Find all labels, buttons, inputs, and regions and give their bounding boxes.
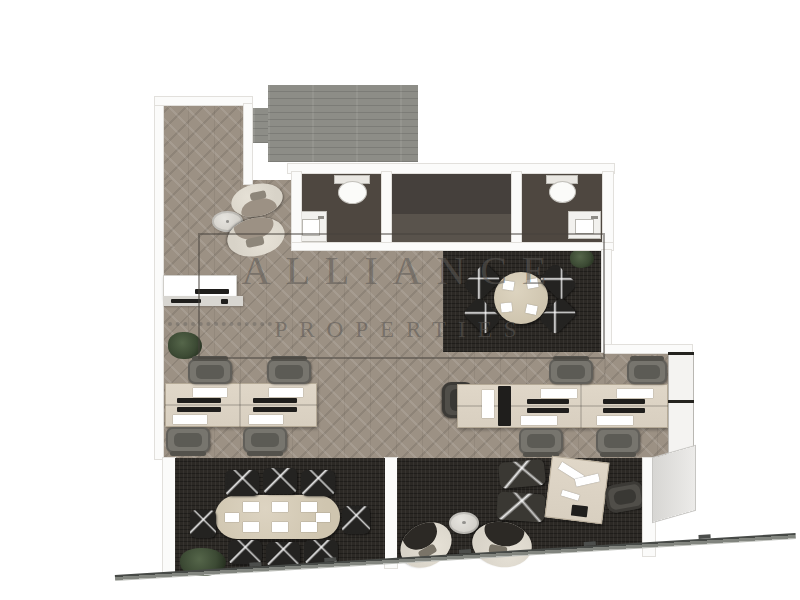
boundary-stub xyxy=(584,541,596,546)
desk-storage xyxy=(498,386,511,426)
side-table xyxy=(449,512,479,534)
wall-corridor-right xyxy=(244,104,252,184)
desk-bank-right xyxy=(457,384,668,428)
task-chair xyxy=(627,359,667,384)
desk-paper xyxy=(561,490,580,501)
watermark-box: ALLIANCE PROPERTIES xyxy=(198,233,605,359)
table-paper xyxy=(272,522,288,532)
desk-paper xyxy=(521,416,557,425)
balcony-deck xyxy=(268,85,418,162)
conference-chair xyxy=(225,470,259,496)
executive-desk xyxy=(544,456,609,525)
desk-keyboard xyxy=(253,398,297,403)
shelf-item xyxy=(171,299,201,303)
desk-paper xyxy=(541,389,577,398)
desk-paper xyxy=(249,415,283,424)
task-chair xyxy=(519,428,563,454)
desk-keyboard xyxy=(603,408,645,413)
desk-cluster-left xyxy=(165,383,317,427)
task-chair xyxy=(166,427,210,453)
task-chair xyxy=(243,427,287,453)
desk-keyboard xyxy=(253,407,297,412)
toilet-bowl xyxy=(338,181,367,204)
task-chair xyxy=(267,359,311,384)
guest-chair xyxy=(498,459,546,489)
wall-corridor-top xyxy=(155,97,252,105)
conference-chair xyxy=(266,542,300,566)
desk-paper xyxy=(482,390,494,418)
desk-paper xyxy=(173,415,207,424)
laptop xyxy=(571,505,588,518)
desk-keyboard xyxy=(527,408,569,413)
desk-divider xyxy=(580,384,582,428)
desk-paper xyxy=(269,388,303,397)
cabinet-edge xyxy=(668,352,694,355)
table-paper xyxy=(243,502,259,512)
cabinet-column xyxy=(668,352,694,458)
wall-left-outer xyxy=(155,97,163,459)
boundary-stub xyxy=(249,562,261,567)
conference-chair xyxy=(263,468,297,494)
task-chair xyxy=(549,359,593,384)
desk-keyboard xyxy=(177,398,221,403)
conference-chair xyxy=(190,510,216,538)
desk-keyboard xyxy=(177,407,221,412)
watermark-title: ALLIANCE xyxy=(200,247,603,294)
table-paper xyxy=(243,522,259,532)
conference-chair xyxy=(342,506,370,534)
desk-paper xyxy=(193,388,227,397)
desk-paper xyxy=(617,389,653,398)
desk-keyboard xyxy=(603,399,645,404)
guest-chair xyxy=(496,491,546,522)
boundary-stub xyxy=(459,549,471,554)
cabinet-edge xyxy=(668,400,694,403)
table-paper xyxy=(272,502,288,512)
plant xyxy=(168,332,202,359)
table-paper xyxy=(225,513,239,522)
task-chair xyxy=(596,428,640,454)
lounge-pillow xyxy=(249,190,266,201)
table-paper xyxy=(316,513,330,522)
boundary-stub xyxy=(324,557,336,562)
boundary-stub xyxy=(698,534,710,539)
wall-exec-angled xyxy=(653,446,695,522)
watermark-dotted-rule xyxy=(168,322,272,326)
conference-table xyxy=(215,495,340,539)
wall-top-main xyxy=(288,164,614,173)
toilet-bowl xyxy=(549,181,576,203)
toilet-left xyxy=(334,175,370,205)
task-chair xyxy=(188,359,232,384)
watermark-subtitle: PROPERTIES xyxy=(200,317,603,343)
floor-plan-canvas: ALLIANCE PROPERTIES xyxy=(0,0,800,600)
table-paper xyxy=(301,502,317,512)
toilet-right xyxy=(546,175,578,204)
wall-bottom-divider xyxy=(385,458,397,568)
table-paper xyxy=(301,522,317,532)
conference-chair xyxy=(228,540,262,564)
conference-chair xyxy=(301,470,335,496)
desk-keyboard xyxy=(527,399,569,404)
wall-bottom-left-outer xyxy=(163,458,175,574)
desk-divider xyxy=(165,404,317,406)
desk-paper xyxy=(597,416,633,425)
balcony-deck-notch xyxy=(253,108,268,143)
